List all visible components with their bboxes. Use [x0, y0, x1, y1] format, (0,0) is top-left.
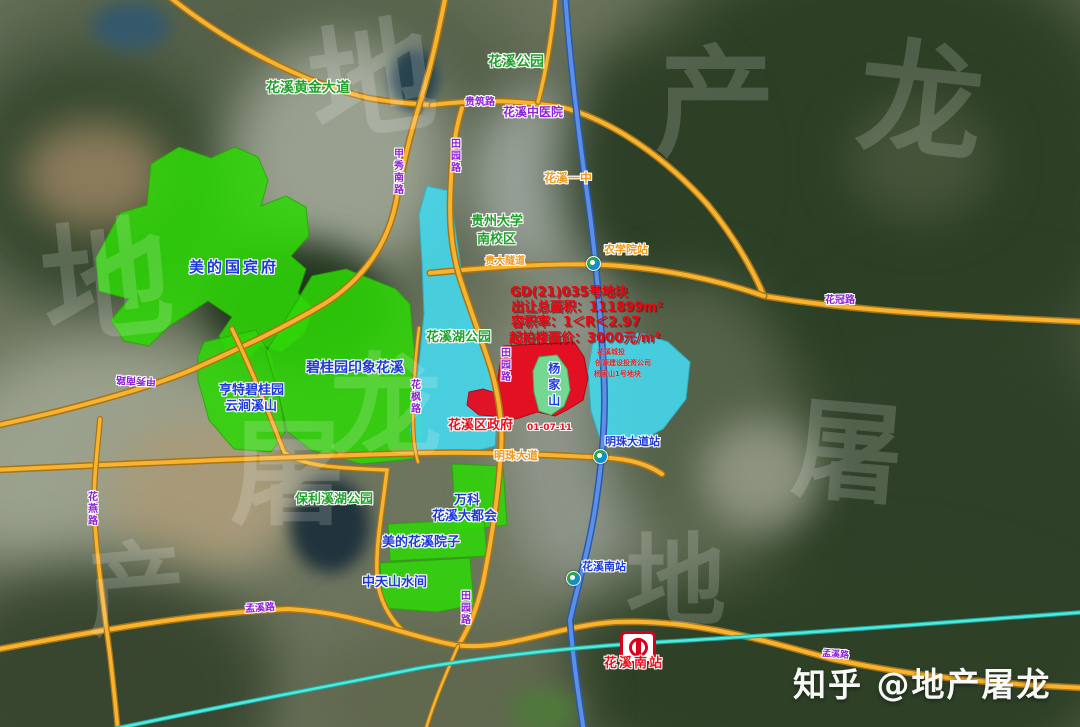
label-guizhou-university: 贵州大学 [471, 215, 523, 230]
label-huaxihu-park: 花溪湖公园 [426, 331, 491, 346]
label-vanke: 万科 [454, 494, 480, 509]
metro-station-icon-huaxi-south [566, 571, 581, 586]
metro-station-icon-nongxueyuan [586, 256, 601, 271]
zhihu-watermark: 知乎 @地产屠龙 [793, 658, 1052, 706]
label-huaxi-no1-school: 花溪一中 [544, 172, 592, 186]
info-floor-price: 起拍楼面价：3000元/m² [509, 327, 660, 346]
label-mengxi-road-west: 孟溪路 [245, 602, 276, 616]
label-district-government: 花溪区政府 [448, 419, 513, 434]
metro-station-icon-mingzhu [593, 449, 608, 464]
label-parcel-code: 01-07-11 [527, 423, 572, 433]
label-huaxi-park: 花溪公园 [488, 54, 544, 70]
label-hengte-bgy: 亨特碧桂园 [219, 384, 284, 399]
label-midea-guobinfu: 美的国宾府 [189, 259, 279, 276]
label-guizhu-road: 贵筑路 [465, 97, 495, 109]
satellite-land-parcel-map: 地产龙地龙屠屠地产 花溪公园 花溪黄金大道 贵筑路 花溪中医院 田园路 甲秀南路… [0, 0, 1080, 727]
note-cyan-parcel-line2: 创源建设投资公司 [595, 358, 651, 368]
note-cyan-parcel-line1: 花溪城投 [597, 347, 625, 357]
label-huayan-road: 花燕路 [85, 491, 97, 527]
label-tianyuan-road-mid: 田园路 [498, 347, 510, 383]
label-bgy-yinxiang-huaxi: 碧桂园印象花溪 [306, 360, 404, 376]
label-midea-huaxi-yuanzi: 美的花溪院子 [382, 536, 460, 551]
label-nongxueyuan-station: 农学院站 [604, 244, 648, 257]
road-top-stub [538, 0, 556, 102]
label-yangjiashan: 杨家山 [546, 362, 560, 410]
label-vanke-huaxi-metropolis: 花溪大都会 [432, 510, 497, 525]
label-zhongtian-shanshuijian: 中天山水间 [362, 576, 427, 591]
label-jiaxiu-south-road-diagonal: 甲秀南路 [116, 373, 157, 387]
label-baoli-xihu-park: 保利溪湖公园 [295, 493, 373, 508]
label-south-campus: 南校区 [477, 233, 516, 248]
label-mingzhu-station: 明珠大道站 [605, 436, 660, 449]
label-tcm-hospital: 花溪中医院 [503, 106, 563, 120]
label-huaguan-road: 花冠路 [825, 295, 855, 307]
label-tianyuan-road-south: 田园路 [458, 590, 470, 626]
label-huaxi-south-metro-station: 花溪南站 [582, 561, 626, 574]
road-tianyuan-ext [425, 646, 458, 727]
note-cyan-parcel-line3: 杨家山1号地块 [594, 369, 641, 379]
label-guida-tunnel: 贵大隧道 [485, 256, 525, 268]
label-yunjian-xishan: 云涧溪山 [225, 400, 277, 415]
label-huaxi-south-rail-station: 花溪南站 [604, 657, 664, 672]
label-jiaxiu-south-road-vertical: 甲秀南路 [391, 148, 403, 196]
label-huafeng-road: 花枫路 [408, 379, 420, 415]
label-tianyuan-road-north: 田园路 [448, 138, 460, 174]
label-mingzhu-avenue: 明珠大道 [494, 450, 538, 463]
label-golden-avenue: 花溪黄金大道 [266, 80, 350, 96]
